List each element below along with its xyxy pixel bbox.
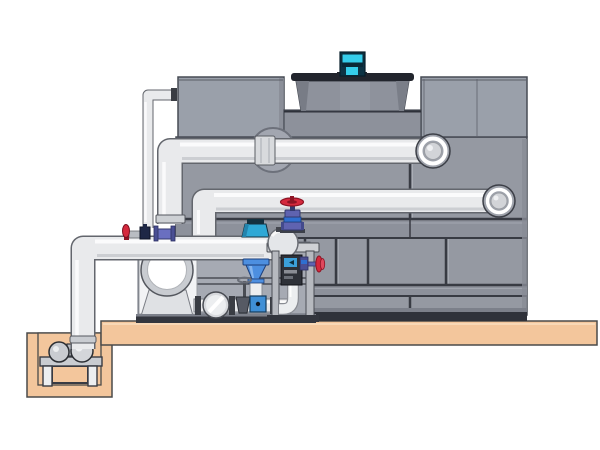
- sump-pump-body: [49, 342, 69, 362]
- cooling-tower-diagram: [0, 0, 600, 450]
- fan-deck-collar: [284, 110, 421, 137]
- purple-flanged-valve: [154, 226, 175, 241]
- tee-fitting: [250, 296, 266, 312]
- vent-pipe-flange: [171, 88, 177, 101]
- ball-valve-handle: [123, 225, 130, 238]
- riser-flange: [70, 336, 96, 343]
- check-valve: [203, 292, 229, 318]
- platform-slab: [101, 321, 597, 345]
- control-box: [281, 255, 302, 285]
- diagram-canvas: [0, 0, 600, 450]
- drop-pipe-flange: [156, 215, 185, 223]
- pipe-coupling: [255, 136, 275, 165]
- upper-pipe-end-elbow: [416, 134, 450, 168]
- fan-motor: [337, 52, 367, 77]
- navy-valve: [140, 227, 150, 239]
- tower-top-right-panel: [421, 77, 527, 137]
- middle-pipe-end-elbow: [483, 185, 515, 217]
- fan-cowl: [291, 73, 414, 111]
